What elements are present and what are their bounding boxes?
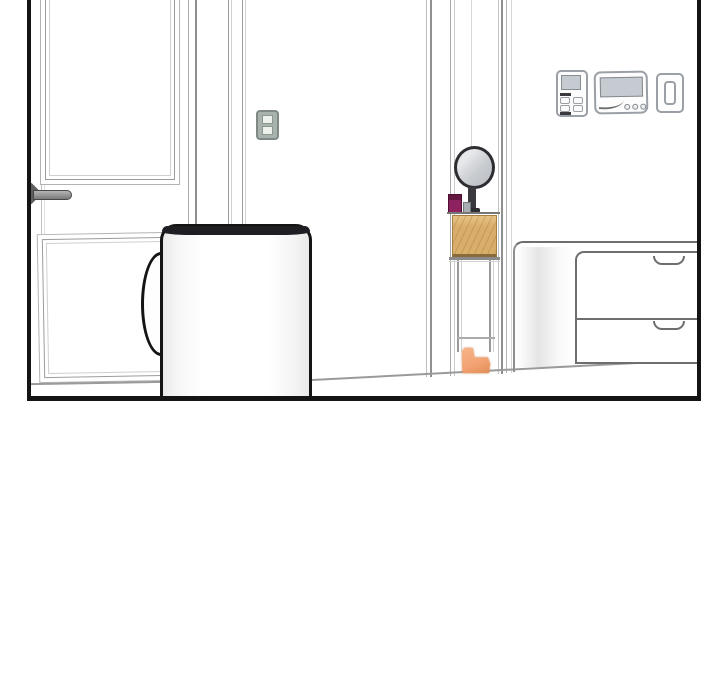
mug bbox=[160, 224, 312, 396]
intercom-dark-bar bbox=[560, 112, 571, 115]
doorway-frame-line bbox=[430, 0, 432, 377]
page-gutter bbox=[0, 401, 720, 700]
doorway-frame-line bbox=[454, 0, 455, 376]
intercom-button bbox=[560, 105, 570, 112]
wooden-box bbox=[452, 215, 497, 257]
intercom-dark-bar bbox=[560, 93, 571, 96]
shelf-board-highlight bbox=[449, 261, 500, 262]
wall-intercom bbox=[556, 70, 588, 117]
cosmetic-box-lid bbox=[449, 195, 461, 200]
intercom-button bbox=[573, 97, 583, 104]
thermostat-needle bbox=[599, 98, 624, 111]
intercom-button bbox=[560, 97, 570, 104]
cosmetic-box bbox=[448, 194, 462, 213]
intercom-button bbox=[573, 105, 583, 112]
webtoon-page bbox=[0, 0, 720, 700]
door-handle bbox=[33, 190, 72, 200]
round-mirror bbox=[454, 146, 495, 189]
light-switch bbox=[256, 110, 279, 140]
switch-rocker-bottom bbox=[262, 126, 273, 135]
thermostat-display bbox=[600, 77, 643, 98]
panel-bevel bbox=[49, 0, 171, 176]
doorway-frame-line bbox=[450, 0, 451, 376]
dresser-drawers bbox=[575, 251, 697, 364]
shelf-top-edge bbox=[447, 212, 500, 214]
thermostat-dial bbox=[632, 104, 638, 110]
thermostat-dial bbox=[624, 104, 630, 110]
switch-plate-rocker bbox=[664, 81, 676, 105]
drawer-handle-top bbox=[653, 256, 685, 265]
shelf-rung bbox=[457, 337, 495, 339]
doorway-frame-line bbox=[506, 0, 507, 373]
dresser-side-shading bbox=[517, 247, 573, 367]
doorway-frame-line bbox=[498, 0, 499, 374]
shelf-board bbox=[449, 257, 500, 260]
drawer-handle-bottom bbox=[653, 321, 685, 330]
mug-rim bbox=[162, 226, 310, 235]
doorway-frame-line bbox=[501, 0, 503, 374]
intercom-screen bbox=[561, 75, 581, 90]
drawer-divider bbox=[577, 318, 697, 320]
doorway-frame-line bbox=[426, 0, 427, 377]
door-upper-panel bbox=[40, 0, 180, 185]
slipper-shape bbox=[462, 348, 490, 373]
thermostat-dial bbox=[640, 104, 646, 110]
doorway-frame-line bbox=[511, 0, 512, 373]
wall-thermostat bbox=[594, 71, 649, 115]
orange-slipper bbox=[462, 348, 490, 373]
switch-rocker-top bbox=[262, 115, 273, 124]
comic-panel bbox=[27, 0, 701, 401]
wood-grain bbox=[453, 216, 496, 254]
wall-switch-plate bbox=[656, 73, 684, 113]
